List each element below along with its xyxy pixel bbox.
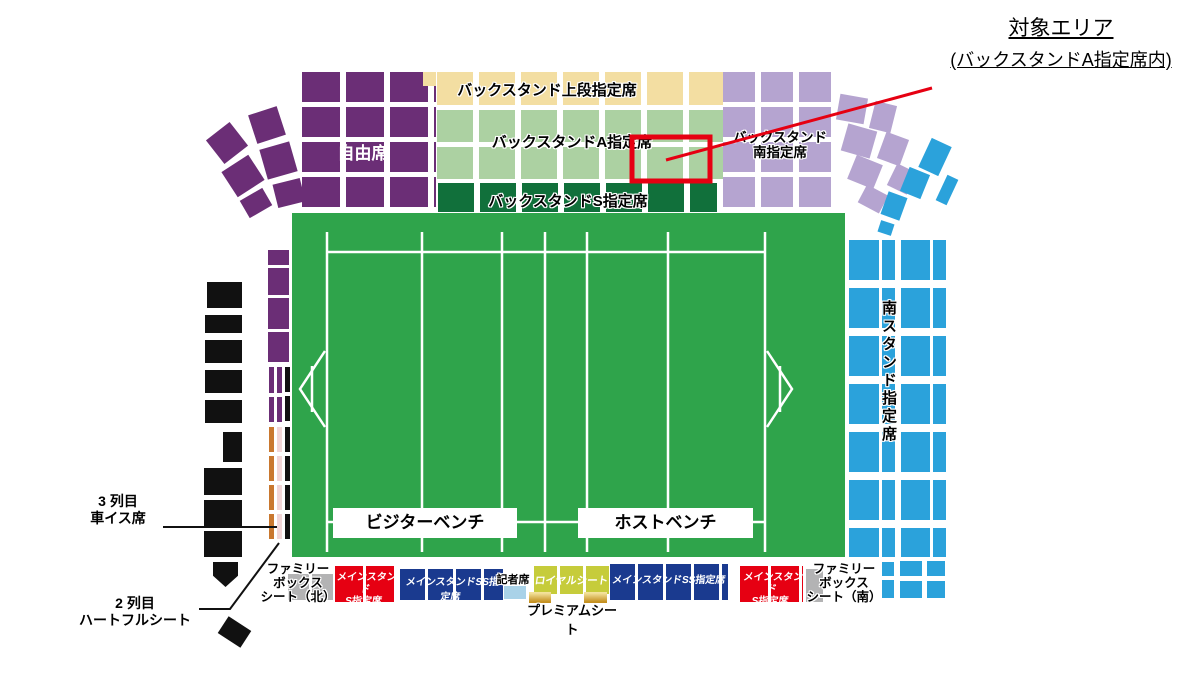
seat-strip	[285, 427, 290, 543]
seat-block	[218, 616, 252, 647]
section-main-s-north-label: メインスタンド S指定席	[332, 572, 397, 608]
seat-block	[836, 94, 868, 124]
press-seats-label: 記者席	[494, 571, 532, 587]
section-south-stand-label: 南スタンド指定席	[878, 300, 899, 490]
seat-block	[248, 106, 286, 144]
main-s-line2: S指定席	[332, 596, 394, 608]
annotation-text: 対象エリア (バックスタンドA指定席内)	[930, 12, 1192, 72]
section-free-seats-label: 自由席	[318, 139, 408, 164]
seat-block	[268, 250, 289, 265]
section-back-s-label: バックスタンドS指定席	[438, 190, 698, 211]
section-main-ss-north-label: メインスタンドSS指定席	[398, 573, 505, 603]
seat-block	[268, 332, 289, 362]
heartful-label-line2: ハートフルシート	[60, 612, 210, 629]
annotation-subtitle: (バックスタンドA指定席内)	[930, 46, 1192, 72]
seat-block	[205, 400, 242, 423]
seat-block	[205, 340, 242, 363]
section-back-a-label: バックスタンドA指定席	[437, 131, 707, 152]
wheelchair-label: 3 列目 車イス席	[70, 493, 166, 527]
section-royal-seat: ロイヤルシート	[534, 566, 609, 594]
section-main-s-south-label: メインスタンド S指定席	[737, 572, 805, 608]
visitor-bench: ビジターベンチ	[333, 508, 517, 538]
pitch: ビジターベンチ ホストベンチ	[292, 213, 845, 557]
seat-strip	[277, 367, 282, 422]
seat-column	[901, 240, 930, 557]
press-seat-block	[504, 586, 526, 599]
wheelchair-label-line2: 車イス席	[70, 510, 166, 527]
seat-block	[205, 370, 242, 393]
wheelchair-row-strip	[269, 427, 274, 543]
section-back-upper-label: バックスタンド上段指定席	[437, 79, 657, 100]
host-bench: ホストベンチ	[578, 508, 753, 538]
section-back-south-label: バックスタンド 南指定席	[718, 130, 842, 160]
seat-block	[268, 298, 289, 329]
section-main-ss-south: メインスタンドSS指定席	[610, 564, 728, 600]
seat-block	[936, 175, 959, 205]
seat-block	[847, 155, 883, 190]
family-box-north-label: ファミリー ボックス シート（北）	[252, 562, 344, 604]
seat-block	[268, 268, 289, 295]
seat-block	[204, 468, 242, 495]
family-box-north-line1: ファミリー	[252, 562, 344, 576]
seat-block	[273, 178, 306, 208]
seat-block	[918, 138, 951, 176]
main-s-line1: メインスタンド	[739, 572, 805, 596]
seat-block	[223, 432, 242, 462]
main-s-line1: メインスタンド	[334, 572, 397, 596]
section-main-s-south: メインスタンド S指定席	[740, 566, 803, 602]
seat-column	[849, 240, 879, 557]
annotation-title: 対象エリア	[930, 12, 1192, 42]
section-back-south-label-line1: バックスタンド	[718, 130, 842, 145]
seat-strip	[285, 367, 290, 422]
family-box-north-line2: ボックス	[252, 576, 344, 590]
main-s-line2: S指定席	[737, 596, 802, 608]
seat-block	[204, 531, 242, 557]
seat-strip	[269, 367, 274, 422]
stadium-seating-map: 自由席 バックスタンド上段指定席 バックスタンドA指定席 バックスタンドS指定席…	[0, 0, 1200, 675]
section-main-s-north: メインスタンド S指定席	[335, 566, 395, 602]
family-box-south-line2: ボックス	[800, 576, 888, 590]
section-royal-seat-label: ロイヤルシート	[533, 573, 610, 588]
seat-block	[259, 141, 297, 179]
heartful-label-line1: 2 列目	[60, 595, 210, 612]
seat-block	[927, 561, 945, 576]
seat-block	[869, 101, 897, 133]
heartful-row-strip	[277, 427, 282, 543]
section-back-south-label-line2: 南指定席	[718, 145, 842, 160]
seat-block	[204, 500, 242, 527]
family-box-south-line1: ファミリー	[800, 562, 888, 576]
family-box-north-line3: シート（北）	[252, 590, 344, 604]
heartful-label: 2 列目 ハートフルシート	[60, 595, 210, 629]
family-box-south-label: ファミリー ボックス シート（南）	[800, 562, 888, 604]
seat-block-arrow	[213, 562, 238, 587]
seat-block	[877, 132, 909, 167]
family-box-south-line3: シート（南）	[800, 590, 888, 604]
seat-column	[933, 240, 946, 557]
premium-seat-label: プレミアムシート	[522, 600, 622, 638]
seat-block	[205, 315, 242, 333]
pitch-lines	[292, 213, 845, 557]
seat-block	[423, 72, 436, 86]
seat-block	[900, 581, 922, 598]
seat-block	[877, 220, 894, 236]
wheelchair-label-line1: 3 列目	[70, 493, 166, 510]
seat-block	[927, 581, 945, 598]
section-main-ss-south-label: メインスタンドSS指定席	[609, 571, 729, 586]
seat-block	[900, 561, 922, 576]
seat-block	[207, 282, 242, 308]
section-main-ss-north: メインスタンドSS指定席	[400, 569, 503, 600]
